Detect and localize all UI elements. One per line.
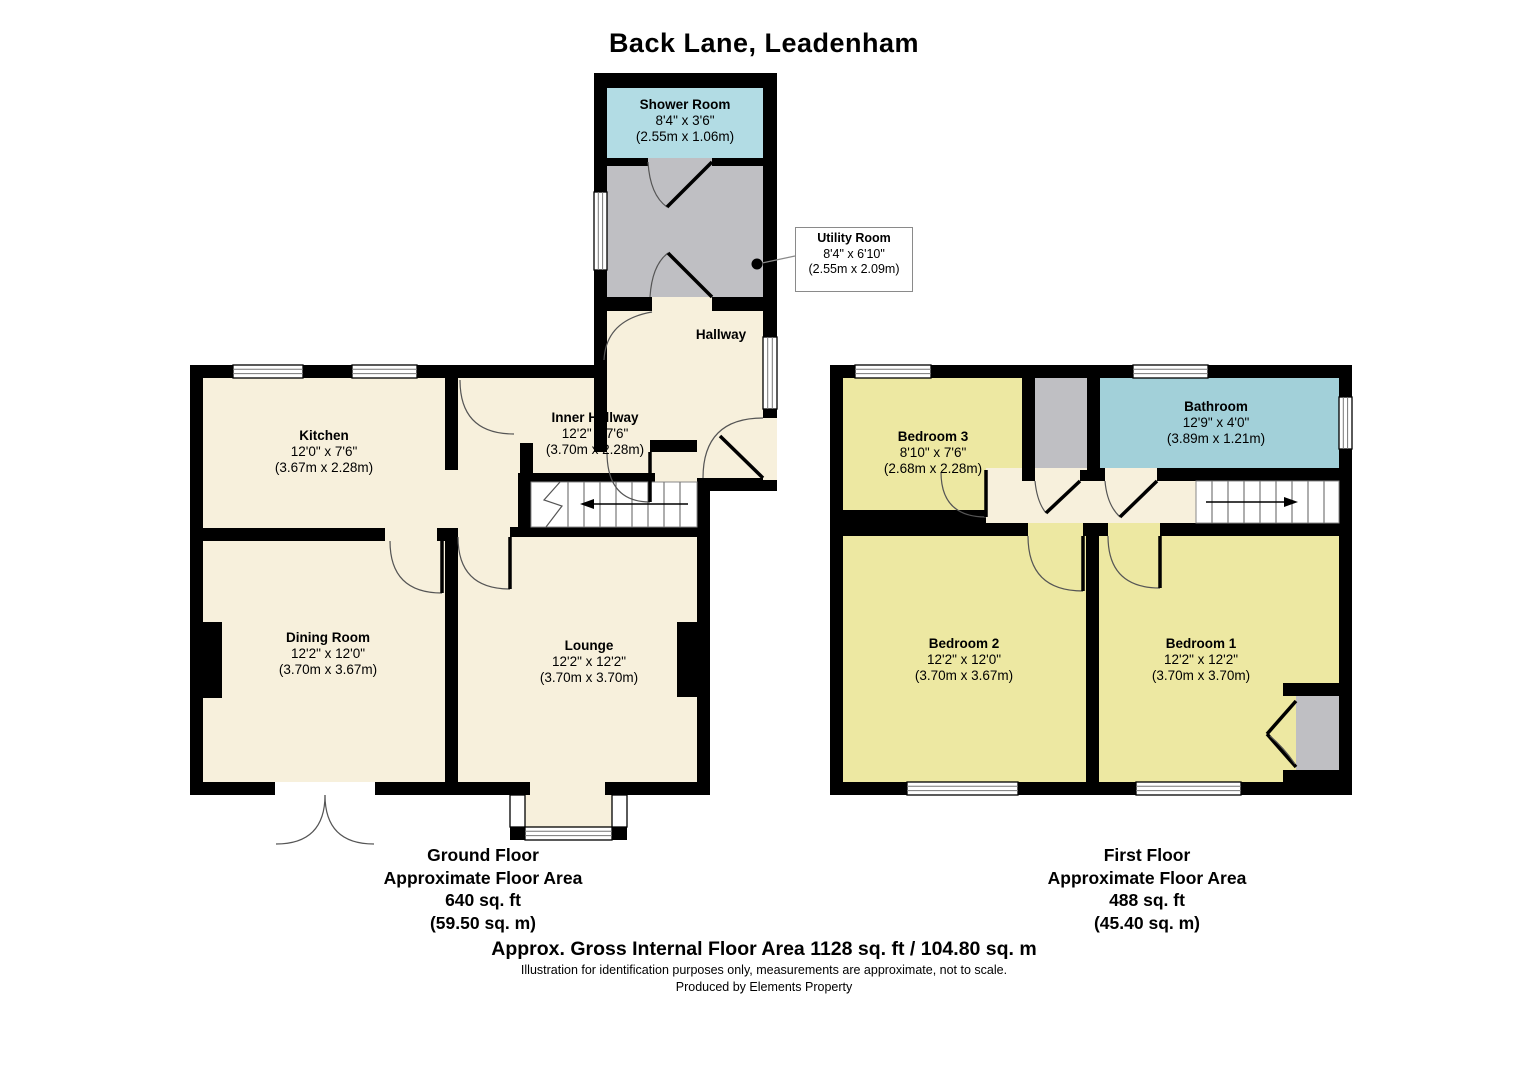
chimney-lounge bbox=[677, 622, 697, 697]
room-dims-imperial: 12'0" x 7'6" bbox=[275, 444, 373, 460]
room-name: Hallway bbox=[696, 327, 746, 343]
doorway-shower bbox=[648, 158, 712, 166]
label-dining-room: Dining Room 12'2" x 12'0" (3.70m x 3.67m… bbox=[279, 630, 377, 678]
credit-text: Produced by Elements Property bbox=[0, 980, 1528, 994]
wall-segment bbox=[520, 443, 533, 473]
first-floor-caption: First Floor Approximate Floor Area 488 s… bbox=[947, 844, 1347, 934]
bathroom-window-top bbox=[1133, 365, 1208, 378]
caption-line: Approximate Floor Area bbox=[283, 867, 683, 890]
caption-line: 488 sq. ft bbox=[947, 889, 1347, 912]
room-dims-imperial: 12'2" x 7'6" bbox=[546, 426, 644, 442]
doorway-bathroom bbox=[1105, 468, 1157, 481]
bedroom1-window bbox=[1136, 782, 1241, 795]
bathroom-window-right bbox=[1339, 397, 1352, 449]
french-door-right-arc bbox=[325, 795, 374, 844]
doorway-front bbox=[763, 418, 777, 480]
room-name: Kitchen bbox=[275, 428, 373, 444]
room-name: Bedroom 1 bbox=[1152, 636, 1250, 652]
room-dims-imperial: 8'4" x 3'6" bbox=[636, 113, 734, 129]
bedroom3-window bbox=[855, 365, 931, 378]
opening-lounge-door bbox=[458, 527, 510, 539]
room-utility bbox=[607, 166, 763, 297]
label-kitchen: Kitchen 12'0" x 7'6" (3.67m x 2.28m) bbox=[275, 428, 373, 476]
french-door-left-arc bbox=[276, 795, 325, 844]
wall-kitchen-inner bbox=[445, 378, 458, 470]
utility-window bbox=[594, 192, 607, 270]
kitchen-window-1 bbox=[233, 365, 303, 378]
wall-bedroom3-bottom bbox=[830, 510, 986, 523]
wall-closet-top bbox=[1283, 683, 1339, 696]
caption-line: (59.50 sq. m) bbox=[283, 912, 683, 935]
wall-dining-lounge bbox=[445, 528, 458, 782]
room-dims-imperial: 8'4" x 6'10" bbox=[796, 247, 912, 263]
room-dims-imperial: 12'2" x 12'2" bbox=[1152, 652, 1250, 668]
bay-window bbox=[510, 795, 627, 840]
bay-window-left bbox=[510, 795, 525, 827]
doorway-cupboard bbox=[1035, 470, 1080, 481]
label-bedroom-2: Bedroom 2 12'2" x 12'0" (3.70m x 3.67m) bbox=[915, 636, 1013, 684]
label-bedroom-1: Bedroom 1 12'2" x 12'2" (3.70m x 3.70m) bbox=[1152, 636, 1250, 684]
room-dims-imperial: 8'10" x 7'6" bbox=[884, 445, 982, 461]
wall-stairs-left bbox=[518, 473, 531, 527]
room-dims-metric: (3.70m x 3.67m) bbox=[915, 668, 1013, 684]
chimney-dining bbox=[203, 622, 222, 698]
kitchen-window-2 bbox=[352, 365, 417, 378]
disclaimer-text: Illustration for identification purposes… bbox=[0, 963, 1528, 977]
room-name: Bathroom bbox=[1167, 399, 1265, 415]
doorway-bedroom2 bbox=[1028, 523, 1083, 536]
caption-line: Ground Floor bbox=[283, 844, 683, 867]
wall-stairs-bottom bbox=[510, 527, 697, 537]
wall-bedroom-divider bbox=[1086, 523, 1099, 795]
room-name: Bedroom 2 bbox=[915, 636, 1013, 652]
ground-floor-caption: Ground Floor Approximate Floor Area 640 … bbox=[283, 844, 683, 934]
room-dims-metric: (2.68m x 2.28m) bbox=[884, 461, 982, 477]
wall-stairs-top bbox=[518, 473, 655, 482]
room-dims-imperial: 12'2" x 12'0" bbox=[915, 652, 1013, 668]
closet-interior bbox=[1296, 696, 1339, 770]
doorway-french bbox=[275, 782, 375, 795]
room-dims-metric: (2.55m x 2.09m) bbox=[796, 262, 912, 278]
room-name: Bedroom 3 bbox=[884, 429, 982, 445]
caption-line: 640 sq. ft bbox=[283, 889, 683, 912]
bay-post-left bbox=[510, 827, 525, 840]
room-dims-metric: (3.89m x 1.21m) bbox=[1167, 431, 1265, 447]
caption-line: First Floor bbox=[947, 844, 1347, 867]
caption-line: (45.40 sq. m) bbox=[947, 912, 1347, 935]
room-dims-imperial: 12'2" x 12'0" bbox=[279, 646, 377, 662]
room-dims-metric: (3.67m x 2.28m) bbox=[275, 460, 373, 476]
room-dims-metric: (2.55m x 1.06m) bbox=[636, 129, 734, 145]
bay-post-right bbox=[612, 827, 627, 840]
room-dims-metric: (3.70m x 3.70m) bbox=[540, 670, 638, 686]
label-hallway: Hallway bbox=[696, 327, 746, 343]
room-dims-metric: (3.70m x 3.70m) bbox=[1152, 668, 1250, 684]
caption-line: Approximate Floor Area bbox=[947, 867, 1347, 890]
room-dims-metric: (3.70m x 2.28m) bbox=[546, 442, 644, 458]
bedroom2-window bbox=[907, 782, 1018, 795]
room-name: Shower Room bbox=[636, 97, 734, 113]
opening-bay bbox=[530, 782, 605, 795]
doorway-utility bbox=[652, 297, 712, 311]
bay-window-right bbox=[612, 795, 627, 827]
label-lounge: Lounge 12'2" x 12'2" (3.70m x 3.70m) bbox=[540, 638, 638, 686]
doorway-bedroom1 bbox=[1108, 523, 1160, 536]
wall-hall-inner bbox=[650, 440, 697, 452]
label-inner-hallway: Inner Hallway 12'2" x 7'6" (3.70m x 2.28… bbox=[546, 410, 644, 458]
label-shower-room: Shower Room 8'4" x 3'6" (2.55m x 1.06m) bbox=[636, 97, 734, 145]
bay-window-bottom bbox=[525, 827, 612, 840]
label-bedroom-3: Bedroom 3 8'10" x 7'6" (2.68m x 2.28m) bbox=[884, 429, 982, 477]
room-cupboard bbox=[1035, 378, 1087, 470]
room-dims-imperial: 12'9" x 4'0" bbox=[1167, 415, 1265, 431]
room-name: Utility Room bbox=[796, 231, 912, 247]
opening-kitchen-passage bbox=[445, 470, 458, 528]
wall-closet-bottom bbox=[1283, 770, 1339, 783]
room-dims-metric: (3.70m x 3.67m) bbox=[279, 662, 377, 678]
wall-cupboard-right bbox=[1087, 365, 1100, 470]
room-name: Dining Room bbox=[279, 630, 377, 646]
room-name: Lounge bbox=[540, 638, 638, 654]
wall-bedroom3-right bbox=[1022, 365, 1035, 470]
hallway-window bbox=[763, 337, 777, 409]
doorway-dining bbox=[385, 528, 437, 541]
floorplan-page: Back Lane, Leadenham bbox=[0, 0, 1528, 1080]
room-name: Inner Hallway bbox=[546, 410, 644, 426]
stairs-ground bbox=[531, 482, 697, 527]
label-utility-room-callout: Utility Room 8'4" x 6'10" (2.55m x 2.09m… bbox=[795, 227, 913, 292]
gross-area-text: Approx. Gross Internal Floor Area 1128 s… bbox=[0, 938, 1528, 961]
callout-dot bbox=[752, 259, 763, 270]
room-dims-imperial: 12'2" x 12'2" bbox=[540, 654, 638, 670]
stairs-first bbox=[1196, 481, 1339, 523]
label-bathroom: Bathroom 12'9" x 4'0" (3.89m x 1.21m) bbox=[1167, 399, 1265, 447]
